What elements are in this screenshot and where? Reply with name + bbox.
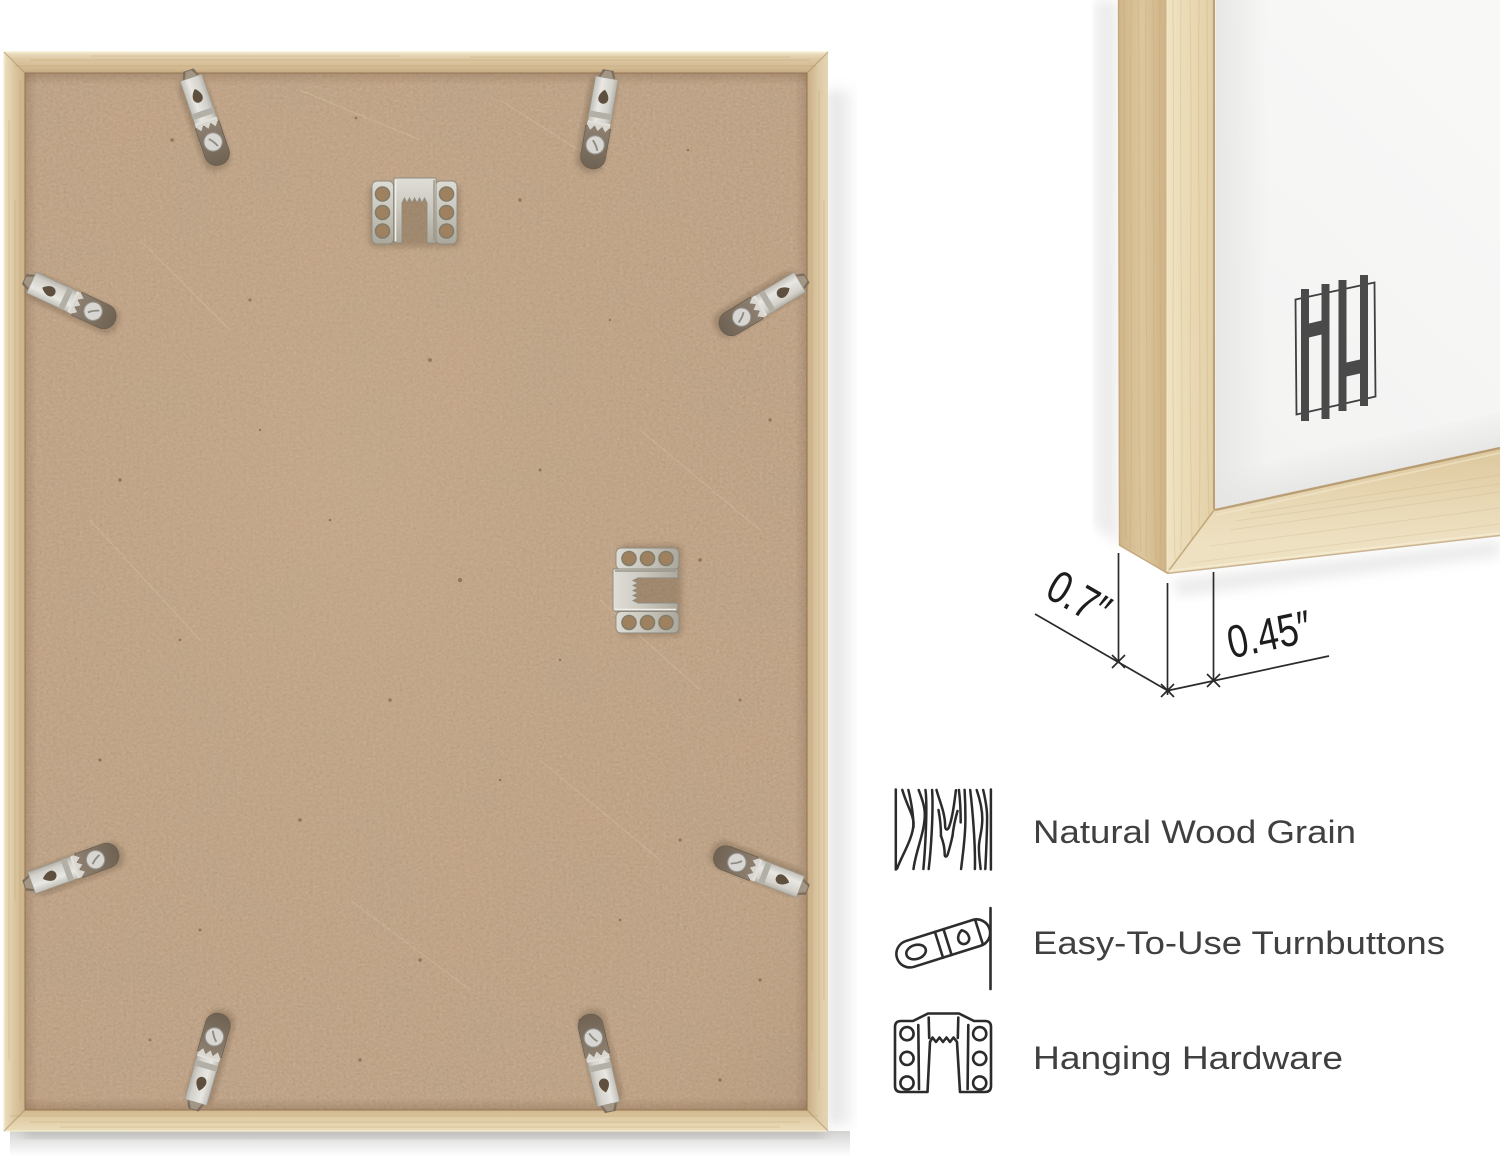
svg-text:Easy-To-Use Turnbuttons: Easy-To-Use Turnbuttons: [1033, 925, 1445, 961]
svg-text:Natural Wood Grain: Natural Wood Grain: [1033, 814, 1356, 850]
svg-text:Hanging Hardware: Hanging Hardware: [1033, 1040, 1343, 1076]
svg-text:0.45″: 0.45″: [1222, 600, 1316, 668]
svg-text:0.7″: 0.7″: [1038, 559, 1120, 636]
